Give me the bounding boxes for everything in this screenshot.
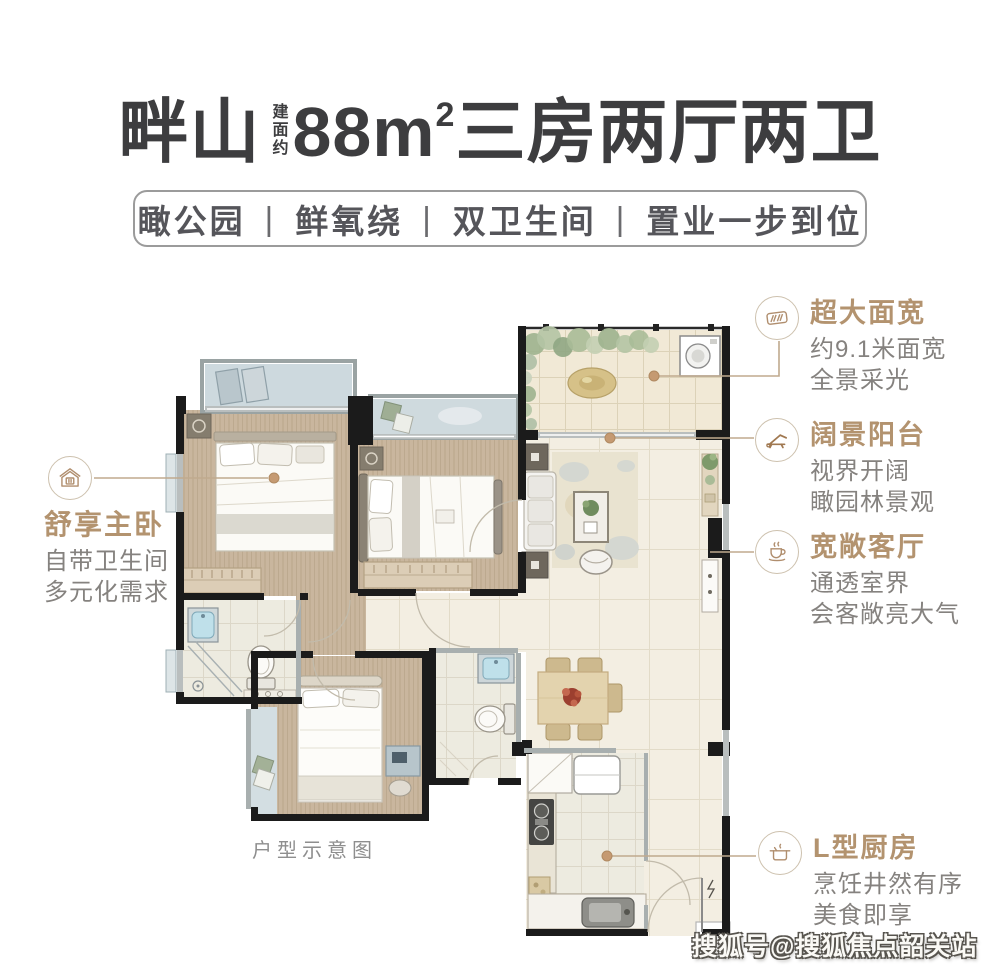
wardrobe xyxy=(183,568,261,593)
lounge-chair-icon xyxy=(755,418,799,462)
console-table xyxy=(702,454,718,517)
page-title: 畔山 建面约 88m2三房两厅两卫 xyxy=(0,86,1000,178)
armchair xyxy=(580,550,612,574)
coffee-cup-icon xyxy=(755,530,799,574)
annotation-line: 瞰园林景观 xyxy=(810,487,935,518)
stove xyxy=(529,799,554,845)
coffee-table xyxy=(574,492,608,542)
nightstand xyxy=(360,447,383,470)
bath2-toilet xyxy=(475,704,515,734)
title-area-note: 建面约 xyxy=(269,103,287,157)
terrace-decor xyxy=(568,368,616,398)
kitchen-sink xyxy=(582,898,634,927)
hall-panel xyxy=(702,560,718,612)
bath2-sink xyxy=(478,654,514,683)
annotation-living-room: 宽敞客厅 通透室界 会客敞亮大气 xyxy=(755,530,960,630)
annotation-extra-width: 超大面宽 约9.1米面宽 全景采光 xyxy=(755,296,946,396)
annotation-line: 多元化需求 xyxy=(44,577,169,608)
watermark: 搜狐号@搜狐焦点韶关站 xyxy=(692,927,977,963)
bed-2 xyxy=(359,474,502,562)
annotation-kitchen: L型厨房 烹饪井然有序 美食即享 xyxy=(758,831,963,931)
title-size-value: 88m xyxy=(292,93,435,171)
cooking-pot-icon xyxy=(758,831,802,875)
corner-counter xyxy=(528,753,572,793)
annotation-line: 自带卫生间 xyxy=(44,546,169,577)
tagline-item: 瞰公园 xyxy=(138,195,246,243)
annotation-line: 会客敞亮大气 xyxy=(810,599,960,630)
house-icon xyxy=(48,456,92,500)
bath-sink xyxy=(188,608,218,642)
annotation-line: 全景采光 xyxy=(810,365,946,396)
annotation-line: 视界开阔 xyxy=(810,456,935,487)
annotation-title: L型厨房 xyxy=(813,833,963,864)
annotation-title: 舒享主卧 xyxy=(44,509,169,541)
tagline-separator: | xyxy=(265,200,277,238)
annotation-balcony: 阔景阳台 视界开阔 瞰园林景观 xyxy=(755,418,935,518)
floorplan-promo-page: 畔山 建面约 88m2三房两厅两卫 瞰公园 | 鲜氧绕 | 双卫生间 | 置业一… xyxy=(0,0,1000,972)
tagline-item: 置业一步到位 xyxy=(646,195,862,243)
annotation-line: 通透室界 xyxy=(810,568,960,599)
title-size-sup: 2 xyxy=(436,96,456,134)
fridge xyxy=(574,756,620,794)
annotation-title: 超大面宽 xyxy=(810,298,946,329)
wardrobe-2 xyxy=(364,562,472,588)
annotation-line: 烹饪井然有序 xyxy=(813,869,963,900)
bed-3 xyxy=(298,676,382,802)
annotation-title: 宽敞客厅 xyxy=(810,532,960,563)
title-project-name: 畔山 xyxy=(119,97,261,167)
title-size: 88m2三房两厅两卫 xyxy=(292,97,881,167)
nightstand xyxy=(187,414,211,438)
tagline-item: 鲜氧绕 xyxy=(295,195,403,243)
tagline-bar: 瞰公园 | 鲜氧绕 | 双卫生间 | 置业一步到位 xyxy=(133,190,867,247)
window-icon xyxy=(755,296,799,340)
annotation-line: 约9.1米面宽 xyxy=(810,334,946,365)
floorplan-caption: 户型示意图 xyxy=(252,834,377,863)
annotation-title: 阔景阳台 xyxy=(810,420,935,451)
title-rooms: 三房两厅两卫 xyxy=(455,93,881,171)
tagline-item: 双卫生间 xyxy=(453,195,597,243)
washing-machine xyxy=(680,336,720,376)
tagline-separator: | xyxy=(422,200,434,238)
annotation-master-bedroom: 舒享主卧 自带卫生间 多元化需求 xyxy=(44,456,169,608)
master-bed xyxy=(214,432,336,551)
tagline-separator: | xyxy=(616,200,628,238)
